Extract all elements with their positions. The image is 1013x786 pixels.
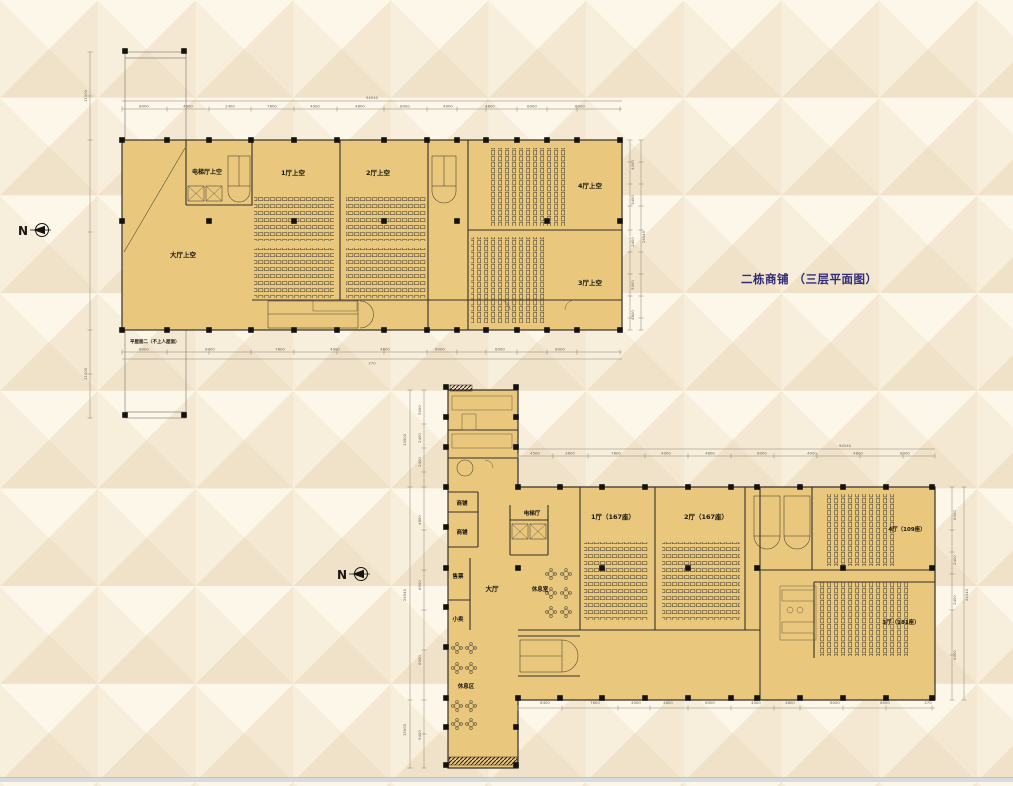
dim: 4800 [183, 104, 193, 109]
dim: 2400 [630, 237, 635, 247]
column-marker [515, 484, 521, 490]
column-marker [617, 218, 623, 224]
column-marker [685, 695, 691, 701]
room-label-ticket: 售票 [452, 572, 464, 580]
column-marker [443, 604, 449, 610]
column-marker [685, 565, 691, 571]
column-marker [443, 644, 449, 650]
column-marker [929, 565, 935, 571]
column-marker [122, 48, 128, 54]
column-marker [929, 695, 935, 701]
dim: 2400 [952, 555, 957, 565]
dim: 8000 [139, 347, 149, 352]
column-marker [483, 137, 489, 143]
north-label: N [337, 568, 347, 582]
column-marker [164, 137, 170, 143]
dim: 4800 [853, 451, 863, 456]
floor-plan-drawing: 大厅上空 电梯厅上空 1厅上空 2厅上空 4厅上空 3厅上空 平屋面二（不上人屋… [0, 0, 1013, 782]
column-marker [617, 137, 623, 143]
dim: 6000 [417, 580, 422, 590]
column-marker [291, 218, 297, 224]
column-marker [883, 484, 889, 490]
seats-hall3 [471, 237, 545, 323]
column-marker [443, 695, 449, 701]
seats-hall2 [662, 542, 740, 620]
column-marker [424, 137, 430, 143]
dim: 4800 [785, 700, 795, 705]
column-marker [513, 762, 519, 768]
dim: 4800 [705, 451, 715, 456]
dim: 11000 [83, 89, 88, 102]
room-label-hall4-void: 4厅上空 [578, 181, 603, 190]
column-marker [443, 762, 449, 768]
dim-total-top: 94540 [839, 443, 852, 448]
column-marker [443, 444, 449, 450]
room-label-hall3: 3厅（181座） [882, 618, 919, 626]
column-marker [840, 484, 846, 490]
column-marker [557, 484, 563, 490]
dim: 7600 [590, 700, 600, 705]
column-marker [424, 327, 430, 333]
dim-total-top: 94540 [366, 95, 379, 100]
column-marker [728, 484, 734, 490]
dim: 5000 [630, 280, 635, 290]
room-label-hall1: 1厅（167座） [591, 512, 635, 521]
column-marker [513, 414, 519, 420]
column-marker [206, 327, 212, 333]
north-label: N [18, 224, 28, 238]
room-label-hall4: 4厅（109座） [888, 525, 925, 533]
column-marker [797, 484, 803, 490]
column-marker [599, 695, 605, 701]
column-marker [119, 137, 125, 143]
dim-total-bottom: 270 [368, 361, 376, 366]
dim: 2400 [225, 104, 235, 109]
room-label-hall1-void: 1厅上空 [281, 168, 306, 177]
column-marker [164, 327, 170, 333]
column-marker [797, 695, 803, 701]
north-arrow-upper: N [18, 224, 51, 239]
dim: 4000 [330, 347, 340, 352]
column-marker [334, 327, 340, 333]
column-marker [599, 565, 605, 571]
dim: 7600 [611, 451, 621, 456]
column-marker [443, 384, 449, 390]
column-marker [513, 384, 519, 390]
room-label-rest-area: 休息区 [457, 682, 475, 690]
column-marker [617, 327, 623, 333]
plan-lower: 大厅 电梯厅 商铺 商铺 售票 小卖 休息室 休息区 1厅（167座） 2厅（1… [402, 385, 969, 768]
column-marker [574, 327, 580, 333]
room-label-lounge: 休息室 [531, 585, 549, 593]
north-arrow-icon [352, 570, 364, 578]
column-marker [642, 695, 648, 701]
column-marker [181, 412, 187, 418]
column-marker [685, 484, 691, 490]
dim: 7600 [275, 347, 285, 352]
room-label-lobby-void: 大厅上空 [170, 250, 197, 259]
column-marker [454, 137, 460, 143]
column-marker [381, 327, 387, 333]
dim-total-right: 24540 [641, 230, 646, 243]
north-arrow-icon [33, 226, 45, 234]
page-title: 二栋商铺 （三层平面图） [741, 271, 878, 287]
column-marker [119, 327, 125, 333]
dim: 8400 [540, 700, 550, 705]
dim: 8000 [139, 104, 149, 109]
dim: 8400 [205, 347, 215, 352]
column-marker [454, 327, 460, 333]
dim: 3600 [565, 451, 575, 456]
column-marker [181, 48, 187, 54]
column-marker [291, 327, 297, 333]
dim: 4800 [380, 347, 390, 352]
room-label-elevator-hall-void: 电梯厅上空 [192, 168, 222, 176]
column-marker [381, 218, 387, 224]
column-marker [728, 695, 734, 701]
column-marker [544, 218, 550, 224]
column-marker [443, 724, 449, 730]
dim: 8000 [575, 104, 585, 109]
dim: 8000 [435, 347, 445, 352]
seats-hall2-lower [346, 248, 426, 298]
column-marker [642, 484, 648, 490]
column-marker [840, 695, 846, 701]
dim: 6000 [952, 510, 957, 520]
dim: 8000 [757, 451, 767, 456]
dim: 4800 [663, 700, 673, 705]
dim: 7600 [267, 104, 277, 109]
dim: 8000 [900, 451, 910, 456]
room-label-hall2: 2厅（167座） [684, 512, 728, 521]
dim: 4000 [310, 104, 320, 109]
dim: 4800 [485, 104, 495, 109]
column-marker [454, 218, 460, 224]
column-marker [515, 695, 521, 701]
dim: 2400 [952, 595, 957, 605]
column-marker [754, 484, 760, 490]
seats-hall4 [824, 494, 896, 566]
dim: 4800 [630, 310, 635, 320]
column-marker [513, 444, 519, 450]
dim: 8000 [527, 104, 537, 109]
column-marker [515, 565, 521, 571]
room-label-hall3-void: 3厅上空 [578, 278, 603, 287]
plan-upper: 大厅上空 电梯厅上空 1厅上空 2厅上空 4厅上空 3厅上空 平屋面二（不上人屋… [83, 52, 646, 418]
column-marker [754, 565, 760, 571]
dim: 13900 [402, 433, 407, 446]
dim: 8000 [495, 347, 505, 352]
room-label-shop-a: 商铺 [456, 499, 468, 507]
dim: 4500 [530, 451, 540, 456]
seats-hall1-lower [254, 248, 334, 298]
column-marker [443, 484, 449, 490]
column-marker [557, 695, 563, 701]
window-bottom-edge [0, 777, 1013, 782]
column-marker [381, 137, 387, 143]
dim: 4000 [630, 160, 635, 170]
dim: 4000 [631, 700, 641, 705]
entry-canopy-hatch [450, 385, 472, 391]
room-label-kiosk: 小卖 [452, 615, 464, 623]
room-label-shop-b: 商铺 [456, 528, 468, 536]
column-marker [754, 695, 760, 701]
room-label-elevator-hall: 电梯厅 [524, 509, 541, 517]
dim: 15000 [402, 723, 407, 736]
seats-hall1 [584, 542, 648, 620]
column-marker [513, 724, 519, 730]
dim: 4000 [443, 104, 453, 109]
column-marker [334, 137, 340, 143]
column-marker [544, 137, 550, 143]
column-marker [206, 218, 212, 224]
column-marker [248, 327, 254, 333]
tail-edge-hatch [449, 757, 517, 765]
column-marker [206, 137, 212, 143]
dim: 5000 [417, 405, 422, 415]
dim: 24540 [402, 588, 407, 601]
room-label-lobby: 大厅 [486, 584, 500, 593]
dim: 8000 [417, 655, 422, 665]
column-marker [248, 137, 254, 143]
column-marker [544, 327, 550, 333]
column-marker [443, 565, 449, 571]
dim: 8000 [400, 104, 410, 109]
column-marker [483, 327, 489, 333]
seats-hall4 [488, 148, 568, 226]
seats-hall3 [818, 582, 910, 656]
room-label-hall2-void: 2厅上空 [366, 168, 391, 177]
roof-note: 平屋面二（不上人屋面） [130, 338, 180, 345]
dim: 4800 [417, 515, 422, 525]
dim: 6000 [952, 650, 957, 660]
dim: 8000 [555, 347, 565, 352]
dim: 11000 [83, 367, 88, 380]
column-marker [514, 327, 520, 333]
dim: 4000 [661, 451, 671, 456]
dim: 4800 [355, 104, 365, 109]
column-marker [443, 524, 449, 530]
dim: 2400 [417, 457, 422, 467]
column-marker [599, 484, 605, 490]
column-marker [119, 218, 125, 224]
dim: 8000 [830, 700, 840, 705]
column-marker [443, 414, 449, 420]
column-marker [122, 412, 128, 418]
column-marker [840, 565, 846, 571]
dim: 8000 [705, 700, 715, 705]
dim: 2400 [417, 433, 422, 443]
column-marker [929, 484, 935, 490]
dim-total-right: 24540 [964, 588, 969, 601]
column-marker [574, 137, 580, 143]
dim: 3400 [630, 195, 635, 205]
column-marker [514, 137, 520, 143]
dim: 5400 [417, 730, 422, 740]
column-marker [291, 137, 297, 143]
column-marker [883, 695, 889, 701]
dim: 4000 [807, 451, 817, 456]
north-arrow-lower: N [337, 568, 370, 583]
